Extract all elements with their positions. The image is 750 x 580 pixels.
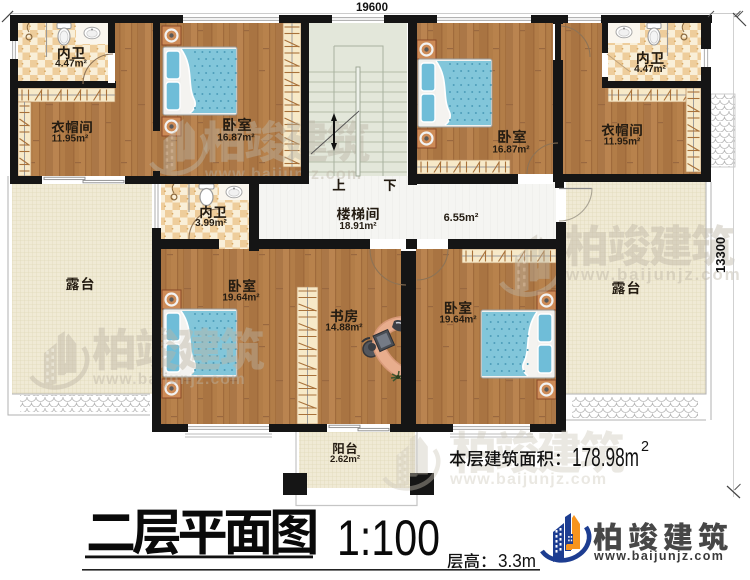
svg-text:18.91m²: 18.91m² xyxy=(339,221,377,232)
svg-text:3.3m: 3.3m xyxy=(498,551,536,571)
svg-text:2: 2 xyxy=(641,438,649,455)
svg-text:3.99m²: 3.99m² xyxy=(195,218,227,229)
svg-text:6.55m²: 6.55m² xyxy=(444,212,479,224)
svg-text:11.95m²: 11.95m² xyxy=(52,134,89,145)
svg-text:www.baijunjz.com: www.baijunjz.com xyxy=(92,371,246,388)
svg-text:19.64m²: 19.64m² xyxy=(439,315,477,326)
svg-text:14.88m²: 14.88m² xyxy=(325,323,363,334)
svg-text:19600: 19600 xyxy=(356,2,388,14)
svg-text:11.95m²: 11.95m² xyxy=(604,137,641,148)
svg-text:16.87m²: 16.87m² xyxy=(217,133,255,144)
svg-text:www.baijunjz.com: www.baijunjz.com xyxy=(593,549,724,563)
svg-text:4.47m²: 4.47m² xyxy=(55,59,87,70)
svg-text:13300: 13300 xyxy=(713,237,728,273)
svg-text:178.98m: 178.98m xyxy=(572,442,639,472)
svg-text:19.64m²: 19.64m² xyxy=(222,293,260,304)
svg-text:www.baijunjz.com: www.baijunjz.com xyxy=(449,471,607,488)
svg-text:2.62m²: 2.62m² xyxy=(330,454,360,465)
svg-text:16.87m²: 16.87m² xyxy=(492,145,530,156)
svg-text:1:100: 1:100 xyxy=(337,510,440,566)
svg-text:4.47m²: 4.47m² xyxy=(634,64,666,75)
